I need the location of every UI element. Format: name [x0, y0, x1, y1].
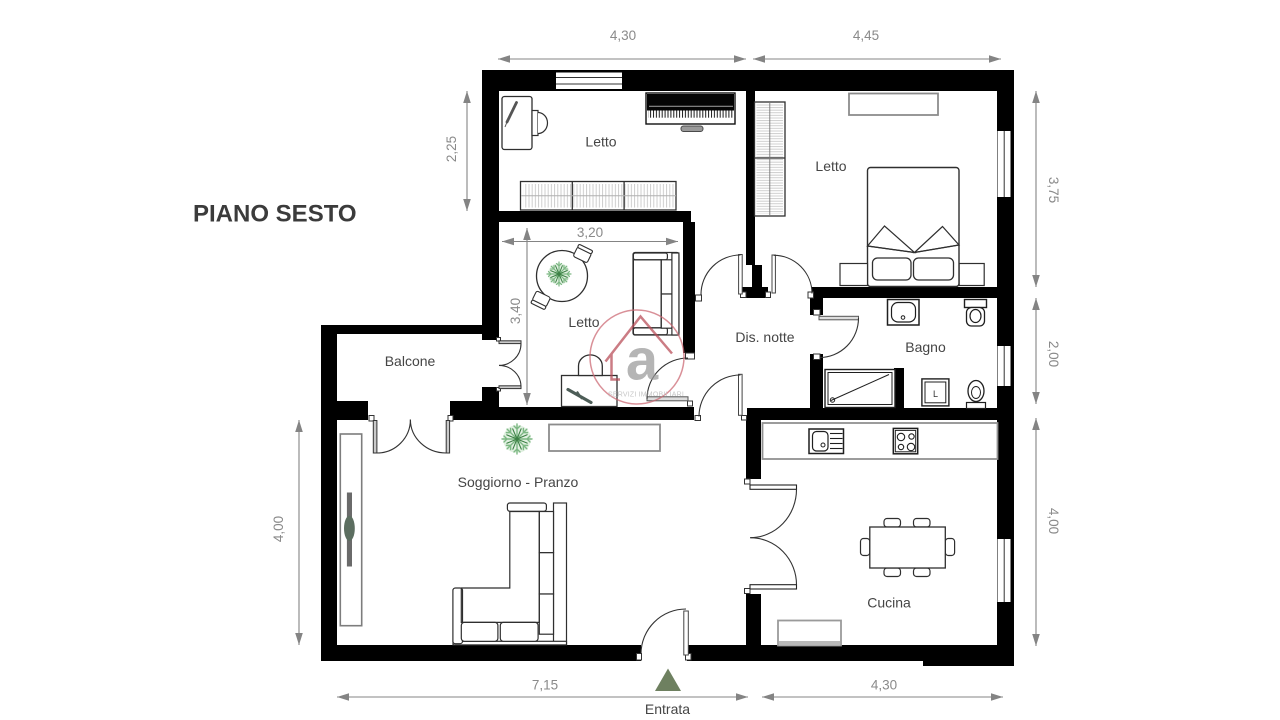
svg-text:Letto: Letto: [815, 158, 846, 174]
svg-text:4,30: 4,30: [610, 28, 636, 43]
svg-text:3,40: 3,40: [508, 298, 523, 324]
svg-text:SERVIZI IMMOBILIARI: SERVIZI IMMOBILIARI: [608, 392, 684, 399]
svg-text:3,20: 3,20: [577, 225, 603, 240]
svg-text:7,15: 7,15: [532, 678, 558, 693]
svg-text:3,75: 3,75: [1046, 177, 1061, 203]
svg-text:4,30: 4,30: [871, 678, 897, 693]
svg-text:PIANO SESTO: PIANO SESTO: [193, 201, 357, 228]
svg-text:4,00: 4,00: [1046, 508, 1061, 534]
svg-text:Entrata: Entrata: [645, 701, 690, 717]
svg-text:Bagno: Bagno: [905, 339, 946, 355]
svg-text:Cucina: Cucina: [867, 595, 911, 611]
svg-text:4,00: 4,00: [271, 516, 286, 542]
svg-text:Dis. notte: Dis. notte: [735, 329, 794, 345]
svg-text:a: a: [626, 328, 659, 393]
svg-text:4,45: 4,45: [853, 28, 879, 43]
svg-text:Soggiorno - Pranzo: Soggiorno - Pranzo: [458, 474, 579, 490]
svg-text:2,25: 2,25: [444, 136, 459, 162]
svg-text:Letto: Letto: [585, 134, 616, 150]
svg-text:Letto: Letto: [568, 314, 599, 330]
svg-text:L: L: [933, 389, 938, 399]
svg-text:Balcone: Balcone: [385, 353, 436, 369]
svg-text:2,00: 2,00: [1046, 341, 1061, 367]
